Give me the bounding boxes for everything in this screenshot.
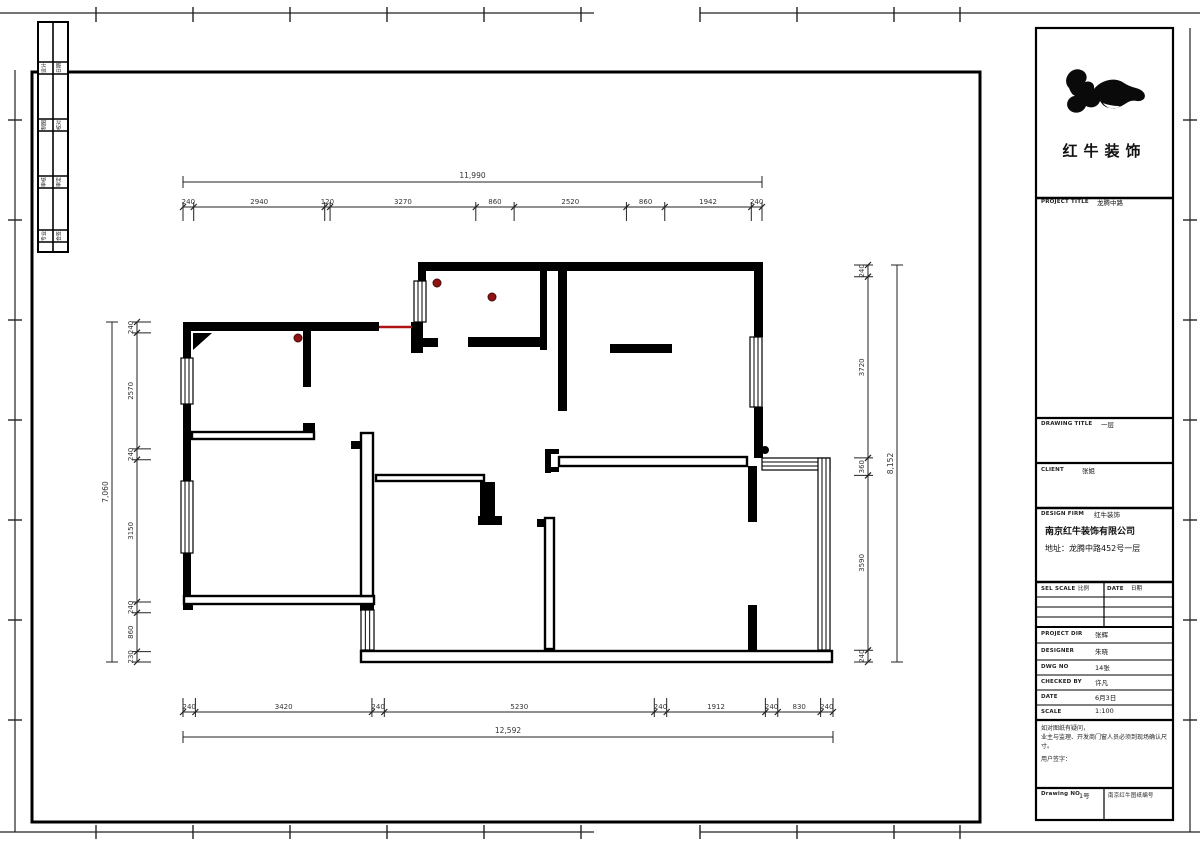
note-line-1: 如对图纸有疑问， xyxy=(1041,724,1169,733)
dim-label: 240 xyxy=(858,649,866,662)
dim-label: 1912 xyxy=(707,703,725,711)
dim-label: 1942 xyxy=(699,198,717,206)
drawing-no-value: 1号 xyxy=(1079,790,1090,800)
dim-label: 240 xyxy=(371,703,384,711)
strip-label: 设计 xyxy=(41,63,48,73)
client-value: 张姐 xyxy=(1082,465,1095,475)
dim-label: 240 xyxy=(127,321,135,334)
floor-plan-accents xyxy=(294,279,769,454)
dim-label: 230 xyxy=(127,650,135,663)
dim-label: 2940 xyxy=(250,198,268,206)
note-line-2: 业主与监理、开发商门窗人员必须到现场确认尺寸。 xyxy=(1041,733,1169,751)
strip-label: 专业 xyxy=(41,231,48,241)
dim-label: 3420 xyxy=(275,703,293,711)
archive-no: 南京红牛图纸编号 xyxy=(1108,791,1154,799)
strip-label: 审核 xyxy=(41,177,48,187)
dim-label: 240 xyxy=(654,703,667,711)
col-date-label: DATE xyxy=(1107,586,1124,592)
dim-label: 860 xyxy=(488,198,501,206)
row-project-dir-value: 张辉 xyxy=(1095,629,1108,639)
dim-label: 3150 xyxy=(127,522,135,540)
dim-label: 3590 xyxy=(858,554,866,572)
col-scale-value: 比例 xyxy=(1078,584,1089,592)
logo-bull-icon xyxy=(1066,69,1145,112)
dim-label: 860 xyxy=(639,198,652,206)
dim-overall-label: 11,990 xyxy=(459,171,485,180)
dim-label: 120 xyxy=(321,198,334,206)
row-project-dir-label: PROJECT DIR xyxy=(1041,631,1083,637)
strip-label: 日期 xyxy=(57,63,63,73)
dim-label: 240 xyxy=(127,448,135,461)
dim-label: 3720 xyxy=(858,358,866,376)
row-checked-by-label: CHECKED BY xyxy=(1041,679,1082,685)
row-scale-label: SCALE xyxy=(1041,709,1062,715)
row-date-value: 6月3日 xyxy=(1095,692,1116,702)
floor-plan-walls xyxy=(183,262,832,662)
col-date-value: 日期 xyxy=(1131,584,1142,592)
dim-label: 830 xyxy=(793,703,806,711)
row-date-label: DATE xyxy=(1041,694,1058,700)
drawing-title-label: DRAWING TITLE xyxy=(1041,421,1092,427)
project-title-value: 龙腾中路 xyxy=(1097,197,1123,207)
drawing-title-value: 一层 xyxy=(1101,419,1114,429)
company-name: 南京红牛装饰有限公司 xyxy=(1045,524,1135,537)
col-scale-label: SEL SCALE xyxy=(1041,586,1075,592)
design-firm-value: 红牛装饰 xyxy=(1094,509,1120,519)
dim-label: 360 xyxy=(858,460,866,473)
dim-label: 240 xyxy=(750,198,763,206)
dim-label: 240 xyxy=(182,198,195,206)
client-label: CLIENT xyxy=(1041,467,1064,473)
dim-label: 2570 xyxy=(127,382,135,400)
dim-label: 240 xyxy=(127,601,135,614)
signature-strip: 设计日期制图校对审核审定专业会签 xyxy=(38,22,68,252)
row-designer-label: DESIGNER xyxy=(1041,648,1074,654)
design-firm-label: DESIGN FIRM xyxy=(1041,511,1084,517)
row-scale-value: 1:100 xyxy=(1095,707,1114,715)
drawing-no-label: Drawing NO xyxy=(1041,791,1080,797)
dim-overall-label: 8,152 xyxy=(886,453,895,475)
strip-label: 审定 xyxy=(56,177,63,187)
row-dwg-no-label: DWG NO xyxy=(1041,664,1069,670)
bull-glyph xyxy=(1066,69,1145,112)
note-signature: 用户签字： xyxy=(1041,755,1169,764)
strip-label: 制图 xyxy=(41,120,48,130)
cad-sheet: 设计日期制图校对审核审定专业会签 24029401203270860252086… xyxy=(0,0,1200,845)
strip-label: 校对 xyxy=(56,120,63,130)
dim-label: 240 xyxy=(765,703,778,711)
dim-label: 860 xyxy=(127,626,135,639)
dim-label: 240 xyxy=(858,264,866,277)
strip-label: 会签 xyxy=(56,231,63,241)
dim-label: 3270 xyxy=(394,198,412,206)
row-checked-by-value: 许凡 xyxy=(1095,677,1108,687)
dim-overall-label: 7,060 xyxy=(101,481,110,503)
dim-label: 240 xyxy=(820,703,833,711)
dim-label: 240 xyxy=(183,703,196,711)
dim-label: 5230 xyxy=(510,703,528,711)
dim-overall-label: 12,592 xyxy=(495,726,521,735)
dim-label: 2520 xyxy=(561,198,579,206)
company-address: 地址：龙腾中路452号一层 xyxy=(1045,543,1140,554)
row-dwg-no-value: 14张 xyxy=(1095,662,1110,672)
row-designer-value: 朱晓 xyxy=(1095,646,1108,656)
project-title-label: PROJECT TITLE xyxy=(1041,199,1089,205)
logo-text: 红牛装饰 xyxy=(1036,140,1173,161)
